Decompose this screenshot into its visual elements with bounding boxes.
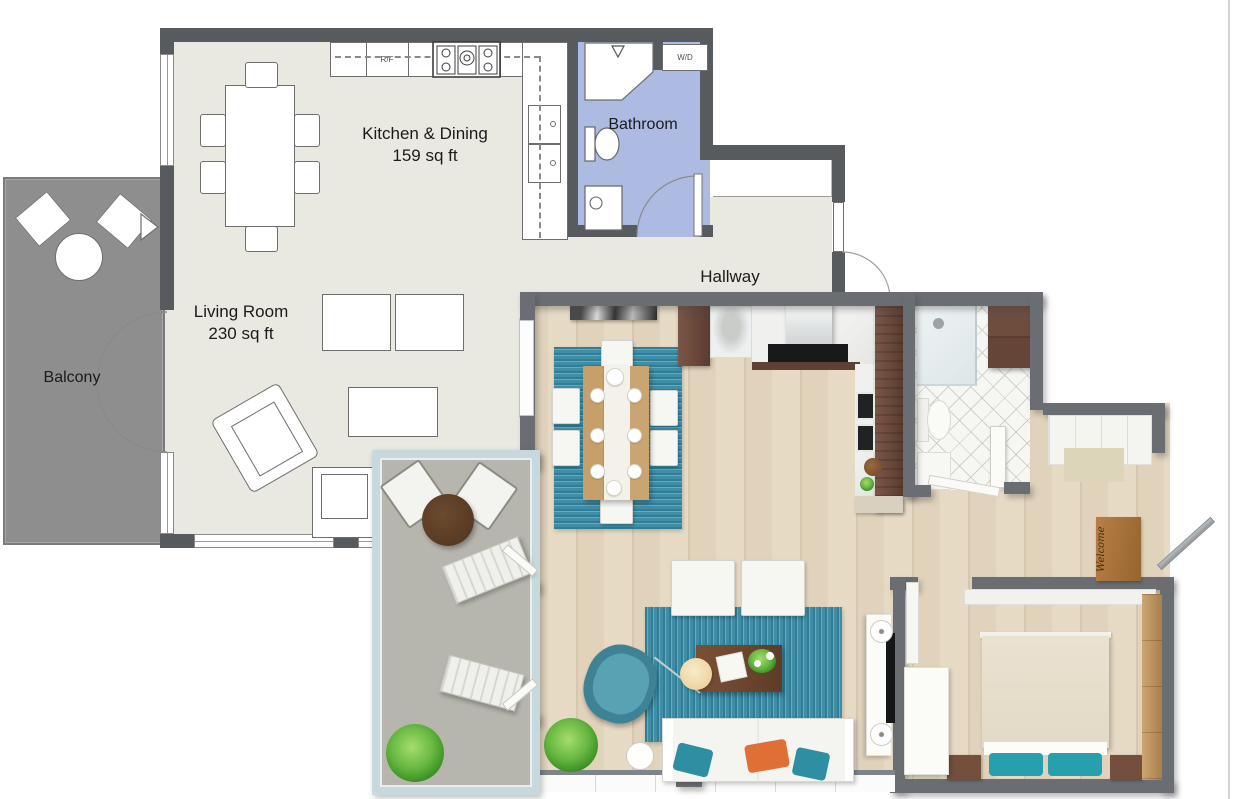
plate (606, 368, 624, 386)
room-label-hallway: Hallway (668, 266, 792, 288)
toilet-bowl-3d (927, 400, 951, 440)
wardrobe-3d (1142, 594, 1162, 780)
bed-3d (982, 636, 1109, 748)
room-label-kitchen: Kitchen & Dining 159 sq ft (330, 123, 520, 167)
dining-chair-3d (552, 388, 580, 424)
sofa-seat-2d (321, 474, 368, 519)
wall-left-seg (160, 28, 174, 54)
speaker-3d (870, 723, 893, 746)
closet-2d (713, 158, 832, 197)
entry-door-arc (842, 252, 890, 296)
dining-chair-2d (245, 226, 278, 252)
hall-rug-3d (1064, 448, 1124, 482)
oven-3d (856, 424, 875, 452)
dining-chair-2d (200, 161, 226, 194)
dining-chair-3d (650, 430, 678, 466)
bedroom-door-3d (906, 582, 919, 664)
coffee-table-book (716, 651, 748, 682)
wall-3d-bath-bottom-r (1004, 482, 1030, 494)
tv-3d (886, 633, 895, 723)
dining-chair-3d (600, 498, 633, 524)
speaker-3d (870, 620, 893, 643)
plate (627, 428, 642, 443)
living-armchair-3d (741, 560, 805, 616)
room-label-living: Living Room 230 sq ft (162, 301, 320, 345)
kitchen-lower-cabinet-3d (752, 362, 860, 370)
counter-divider (408, 42, 409, 77)
room-name: Kitchen & Dining (362, 124, 488, 143)
dresser-3d (904, 667, 949, 775)
flower-blossom (754, 660, 761, 667)
bathroom-door-3d (990, 426, 1006, 488)
floor-plan-canvas: R/F W/D (0, 0, 1238, 799)
wall-3d-top (520, 292, 1043, 306)
cabinet-box (528, 105, 561, 144)
wall-3d-bath-bottom (903, 485, 931, 497)
wall-bath-bottom-l (565, 225, 637, 237)
bed-pillow-teal (989, 753, 1043, 776)
cabinet-knob (550, 160, 556, 166)
wall-3d-hall-right (1152, 403, 1165, 453)
dining-chair-2d (294, 161, 320, 194)
kitchen-tall-cabinet-3d (875, 306, 903, 512)
kitchen-end-cabinet-3d (855, 496, 903, 513)
dining-table-2d (225, 85, 295, 227)
dining-chair-2d (200, 114, 226, 147)
counter-divider (433, 42, 434, 77)
counter-divider (500, 42, 501, 77)
dining-chair-2d (245, 62, 278, 88)
kitchen-plant-3d (860, 477, 874, 491)
nightstand-3d (947, 755, 981, 780)
bed-pillow-teal (1048, 753, 1102, 776)
room-area: 159 sq ft (392, 146, 457, 165)
arc-lamp-shade (680, 658, 712, 690)
cabinet-box (528, 144, 561, 183)
cabinet-square-2d (322, 294, 391, 351)
upper-cabinet-dashed-line (335, 56, 540, 58)
wall-hall-right-seg (832, 145, 845, 202)
living-armchair-3d (671, 560, 735, 616)
wall-3d-hall-top (1043, 403, 1165, 415)
dining-chair-3d (650, 390, 678, 426)
room-label-balcony: Balcony (18, 368, 126, 389)
balcony-table-2d (55, 233, 103, 281)
coffee-table-2d (348, 387, 438, 437)
wall-bath-bottom-r (700, 225, 713, 237)
welcome-mat-3d: Welcome (1096, 517, 1141, 581)
plate (590, 428, 605, 443)
arc-lamp-base (626, 742, 654, 770)
kitchen-cabinet-3d (678, 300, 710, 366)
window-left-lower (160, 452, 174, 534)
outside-white (1043, 292, 1170, 403)
kitchen-stool-3d (864, 458, 882, 476)
cooktop-3d (768, 344, 848, 364)
balcony-table-3d (422, 494, 474, 546)
plate (627, 388, 642, 403)
dishwasher-3d (710, 306, 752, 358)
window-left-upper (160, 54, 174, 166)
living-plant-3d (544, 718, 598, 772)
cabinet-square-2d (395, 294, 464, 351)
entry-door-leaf-2d (833, 202, 844, 252)
wall-3d-bath-left (903, 292, 915, 497)
wall-bottom-seg (160, 534, 194, 548)
wall-3d-bath-right (1030, 292, 1043, 410)
cabinet-knob (550, 121, 556, 127)
plate (590, 388, 605, 403)
washer-dryer-3d (988, 306, 1032, 368)
wall-3d-bedroom-right (1160, 577, 1174, 792)
upper-cabinet-dashed-line (539, 56, 541, 238)
wall-hall-right-seg (832, 252, 845, 293)
window-3d-left-glass (519, 320, 534, 416)
plate (590, 464, 605, 479)
room-area: 230 sq ft (208, 324, 273, 343)
dining-chair-3d (601, 340, 633, 368)
balcony-plant-3d (386, 724, 444, 782)
oven-3d (856, 392, 875, 420)
washer-dryer-label: W/D (662, 54, 708, 62)
wall-3d-bedroom-bottom (890, 779, 1174, 793)
wall-hall-top (713, 145, 845, 160)
dining-chair-2d (294, 114, 320, 147)
wall-top (160, 28, 713, 42)
bedroom-shelf-3d (964, 589, 1156, 605)
welcome-mat-text: Welcome (1096, 517, 1141, 581)
flower-blossom (766, 652, 774, 660)
wall-left-seg (160, 166, 174, 310)
nightstand-3d (1110, 755, 1142, 780)
shower-3d (917, 306, 977, 386)
page-edge-line (1228, 0, 1230, 799)
room-label-bathroom: Bathroom (583, 115, 703, 136)
plate (606, 480, 622, 496)
room-name: Living Room (194, 302, 289, 321)
shower-fixture-3d (933, 318, 944, 329)
plate (627, 464, 642, 479)
floor-2d-bathroom (578, 42, 710, 237)
dining-chair-3d (552, 430, 580, 466)
